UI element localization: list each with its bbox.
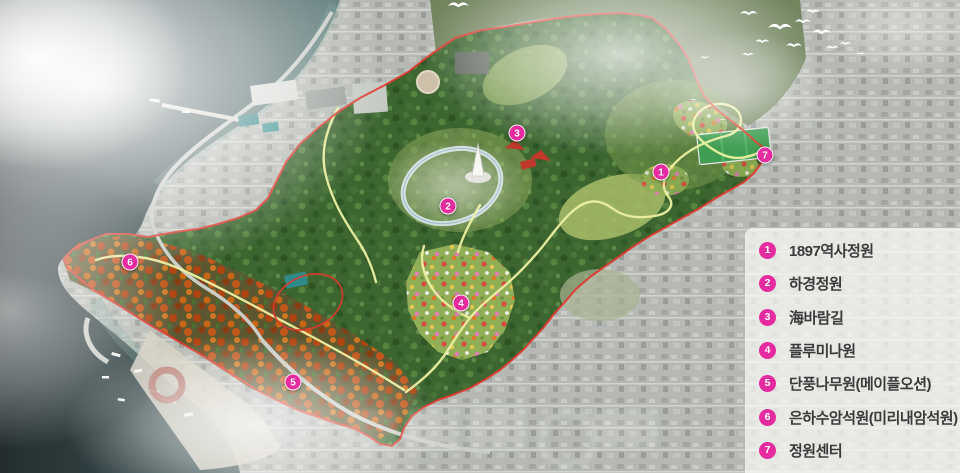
legend-badge-number: 4 <box>759 342 776 359</box>
legend-badge-number: 2 <box>759 275 776 292</box>
legend-item-label: 정원센터 <box>789 440 842 461</box>
legend-item: 5 단풍나무원(메이플오션) <box>759 373 960 394</box>
legend-badge-number: 5 <box>759 375 776 392</box>
legend-item: 1 1897역사정원 <box>759 240 960 261</box>
legend-badge-number: 1 <box>759 242 776 259</box>
legend-item-label: 단풍나무원(메이플오션) <box>789 373 931 394</box>
legend-panel: 1 1897역사정원 2 하경정원 3 海바람길 4 플루미나원 5 단풍나무원… <box>745 228 960 473</box>
legend-item: 3 海바람길 <box>759 307 960 328</box>
legend-item: 4 플루미나원 <box>759 340 960 361</box>
legend-item-label: 하경정원 <box>789 273 842 294</box>
legend-item-label: 은하수암석원(미리내암석원) <box>789 407 958 428</box>
legend-badge-number: 7 <box>759 442 776 459</box>
legend-item: 2 하경정원 <box>759 273 960 294</box>
legend-badge-number: 3 <box>759 309 776 326</box>
legend-item-label: 海바람길 <box>789 307 843 328</box>
legend-item: 7 정원센터 <box>759 440 960 461</box>
legend-item: 6 은하수암석원(미리내암석원) <box>759 407 960 428</box>
legend-item-label: 플루미나원 <box>789 340 856 361</box>
legend-item-label: 1897역사정원 <box>789 240 874 261</box>
legend-badge-number: 6 <box>759 409 776 426</box>
park-masterplan-map: 1234567 1 1897역사정원 2 하경정원 3 海바람길 4 플루미나원… <box>0 0 960 473</box>
